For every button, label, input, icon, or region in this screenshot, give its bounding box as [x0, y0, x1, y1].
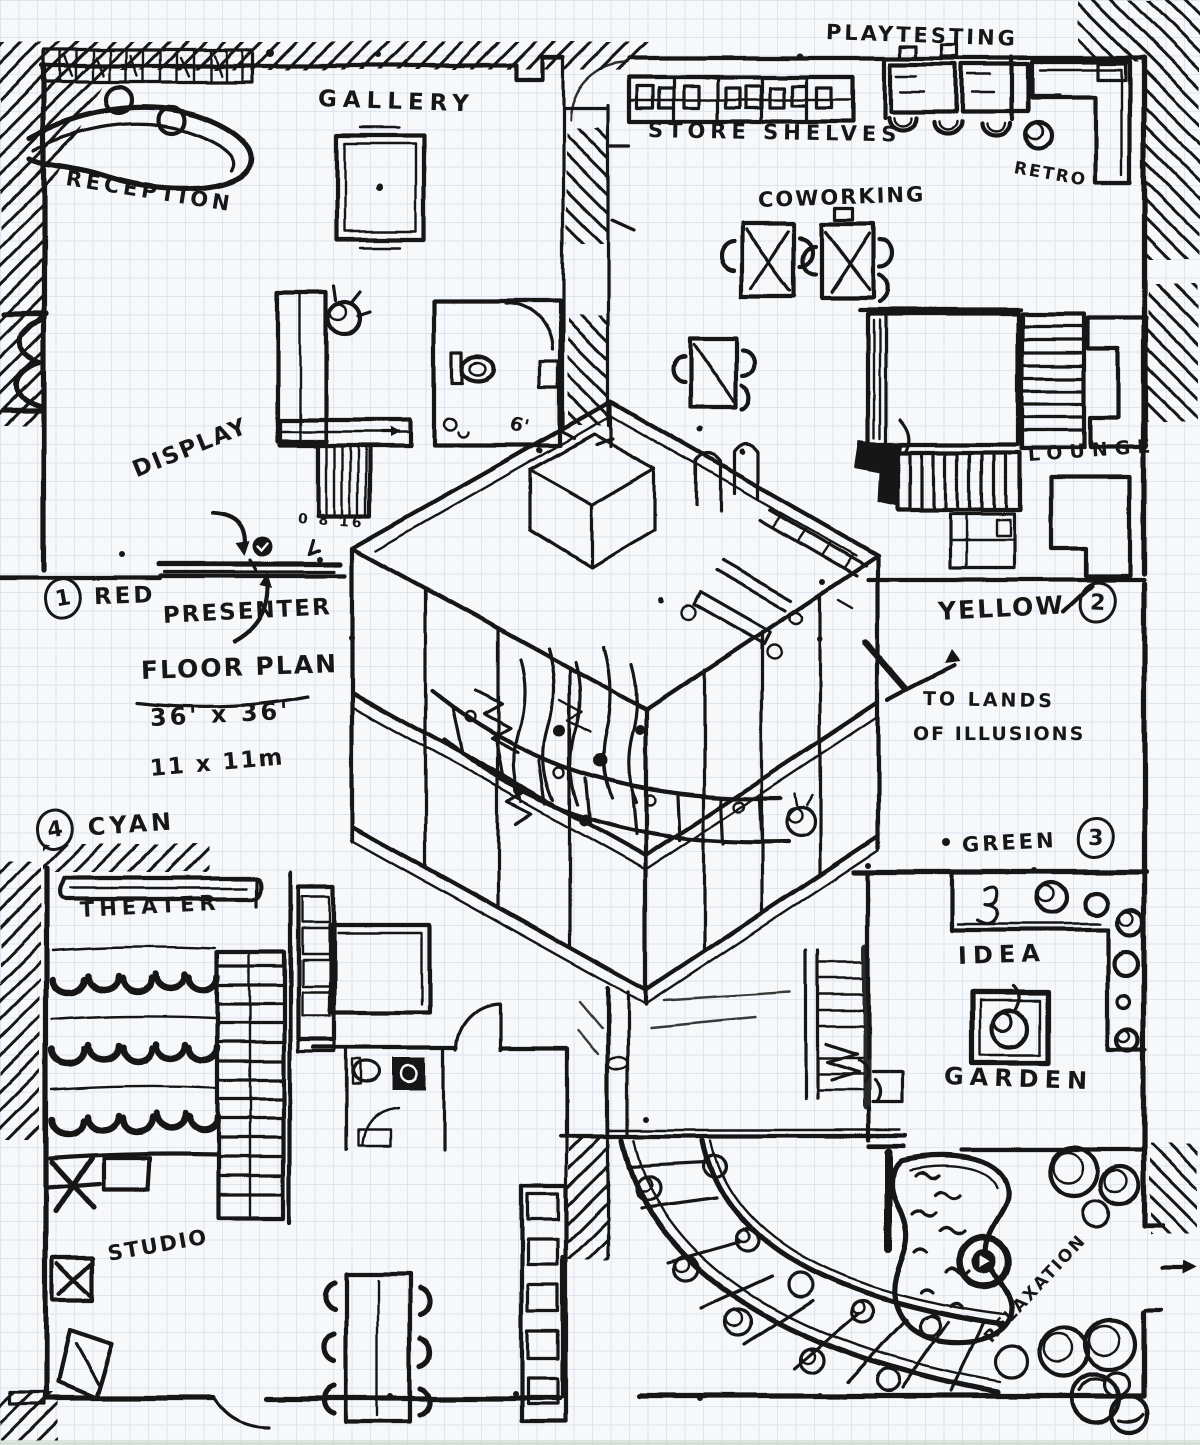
zone-name-cyan: CYAN	[87, 809, 176, 839]
zone-number-3: 3	[1076, 817, 1115, 860]
isometric-inset-sketch	[352, 402, 878, 1004]
room-label-garden: GARDEN	[944, 1064, 1094, 1093]
room-label-gallery: GALLERY	[318, 88, 476, 116]
sketch-sheet: .s2{stroke:#171717;stroke-width:2.4;fill…	[0, 0, 1200, 1445]
zone-marker-green: GREEN 3	[961, 816, 1116, 866]
annotation-exit-line2: OF ILLUSIONS	[913, 725, 1085, 744]
zone-number-4: 4	[33, 806, 78, 854]
zone-name-red: RED	[94, 584, 156, 609]
amphitheater-stairs	[622, 1140, 1004, 1392]
plan-size-feet: 36' x 36'	[149, 699, 291, 730]
room-label-idea: IDEA	[958, 941, 1047, 968]
zone-number-2: 2	[1078, 581, 1118, 625]
room-label-coworking: COWORKING	[758, 184, 926, 211]
plan-title: FLOOR PLAN	[141, 651, 339, 683]
zone-number-1: 1	[41, 574, 86, 622]
room-label-store-shelves: STORE SHELVES	[648, 120, 902, 145]
annotation-exit-line1: TO LANDS	[923, 690, 1055, 711]
zone-name-yellow: YELLOW	[937, 592, 1065, 624]
zone-marker-red: 1 RED	[43, 574, 156, 620]
zone-name-green: GREEN	[961, 830, 1057, 856]
photo-edge	[0, 1440, 1200, 1445]
